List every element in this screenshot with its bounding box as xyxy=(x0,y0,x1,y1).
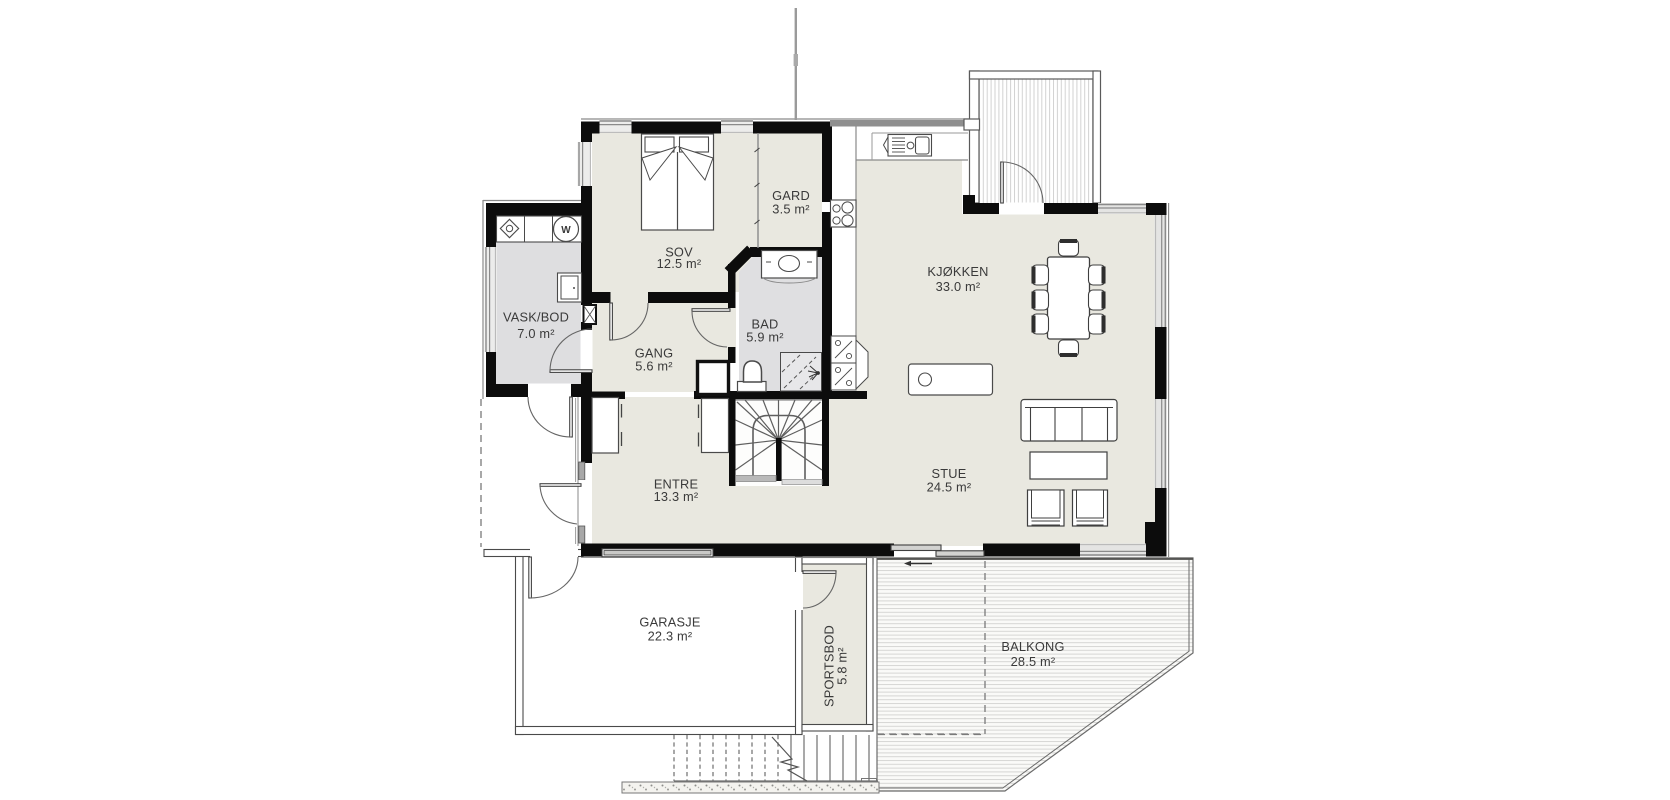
svg-text:24.5 m²: 24.5 m² xyxy=(927,480,972,495)
svg-text:13.3 m²: 13.3 m² xyxy=(654,489,699,504)
svg-text:GARASJE: GARASJE xyxy=(639,615,700,630)
svg-text:7.0 m²: 7.0 m² xyxy=(517,326,555,341)
svg-text:W: W xyxy=(561,225,571,236)
svg-text:33.0 m²: 33.0 m² xyxy=(936,279,981,294)
svg-text:12.5 m²: 12.5 m² xyxy=(657,256,702,271)
svg-text:KJØKKEN: KJØKKEN xyxy=(927,264,988,279)
svg-text:28.5 m²: 28.5 m² xyxy=(1011,654,1056,669)
svg-text:3.5 m²: 3.5 m² xyxy=(772,202,810,217)
svg-text:5.9 m²: 5.9 m² xyxy=(746,330,784,345)
svg-text:VASK/BOD: VASK/BOD xyxy=(503,310,569,325)
svg-text:5.8 m²: 5.8 m² xyxy=(835,647,850,685)
svg-text:5.6 m²: 5.6 m² xyxy=(635,359,673,374)
svg-text:22.3 m²: 22.3 m² xyxy=(648,629,693,644)
svg-text:BALKONG: BALKONG xyxy=(1001,639,1064,654)
